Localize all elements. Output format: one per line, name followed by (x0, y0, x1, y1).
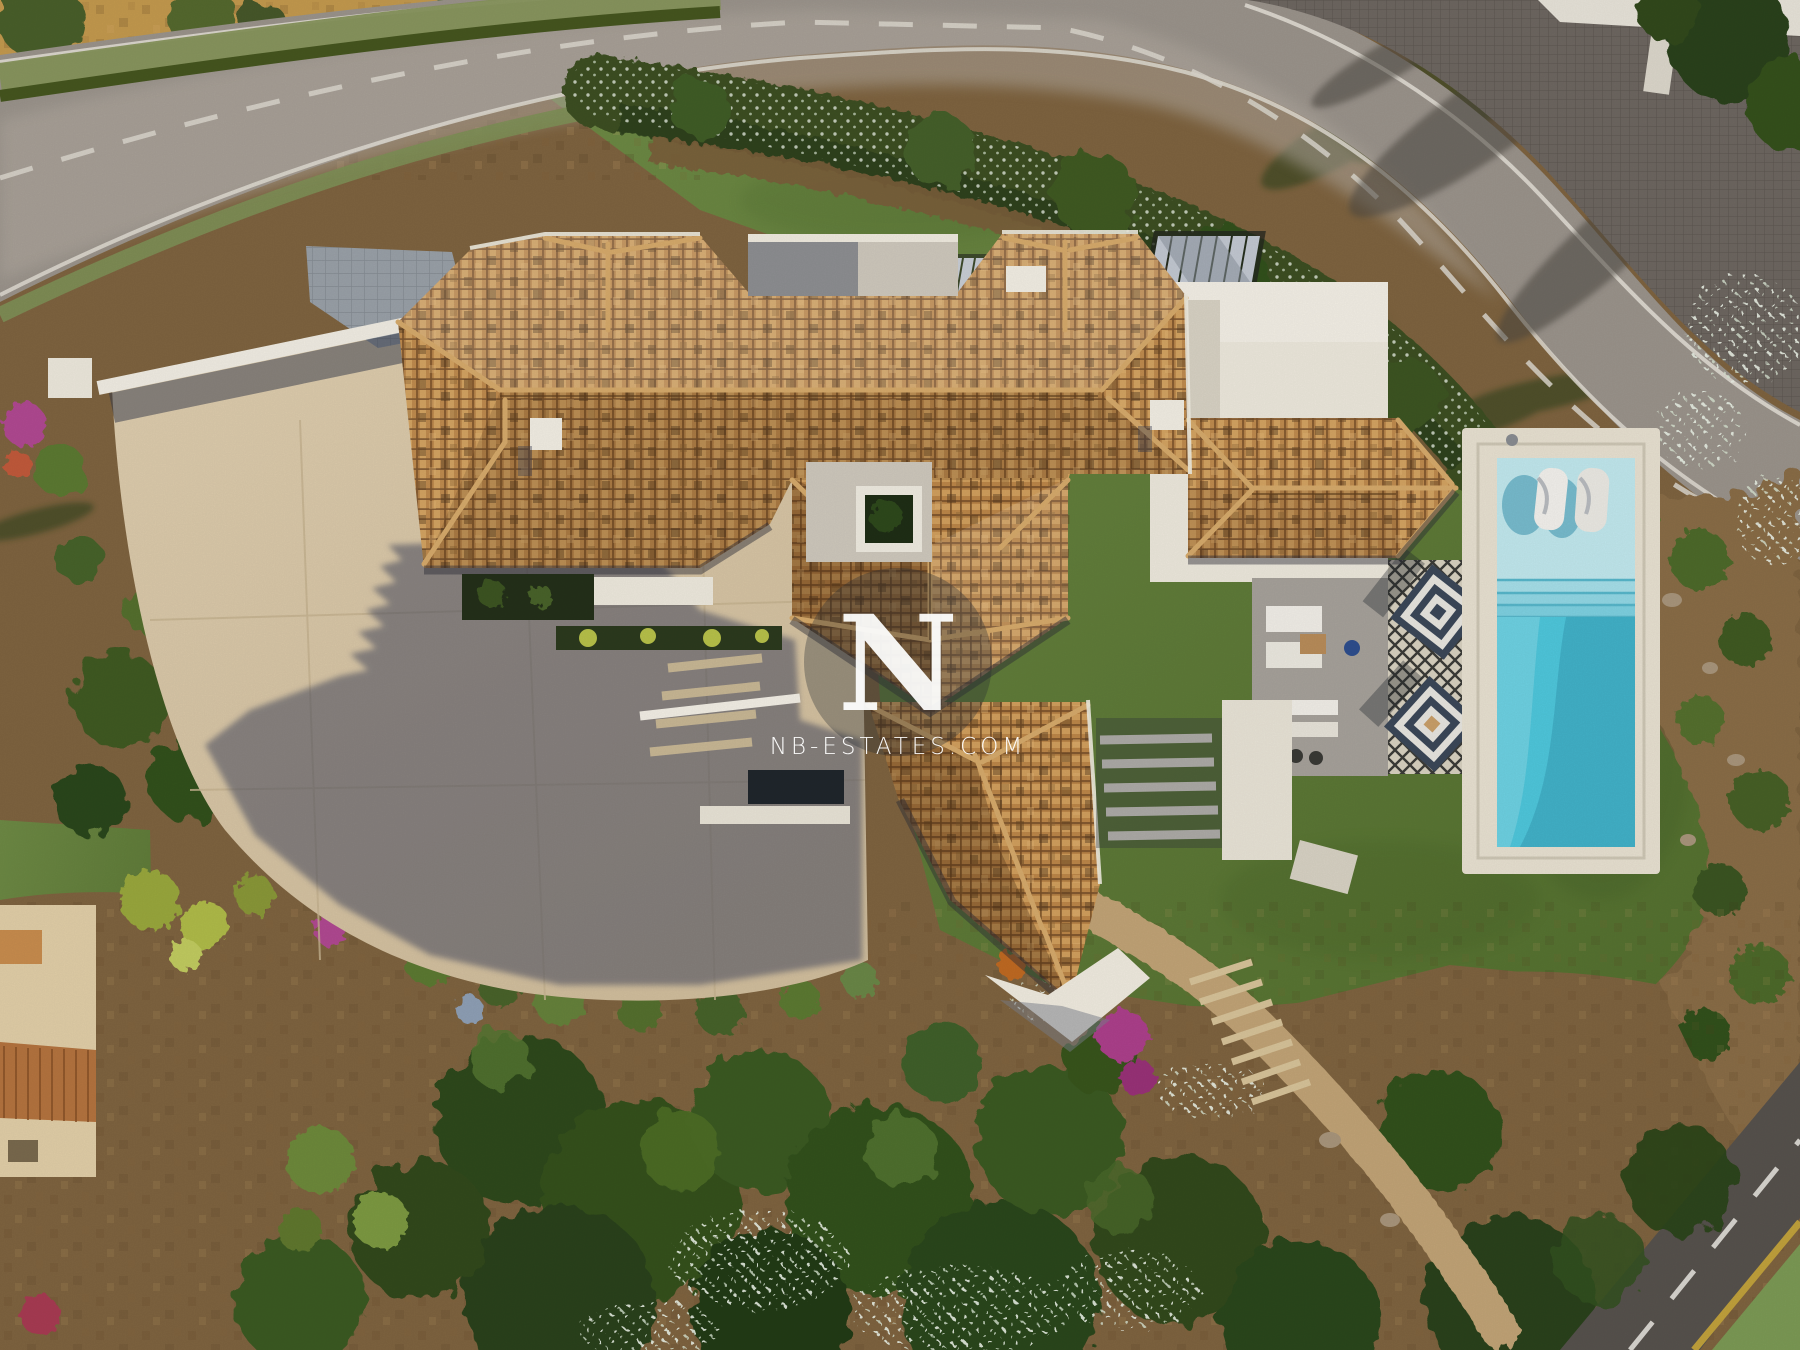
watermark-site-text: NB-ESTATES.COM (770, 734, 1026, 760)
watermark-logo-letter: N (838, 587, 959, 742)
aerial-photo-luxury-villa: N NB-ESTATES.COM (0, 0, 1800, 1350)
